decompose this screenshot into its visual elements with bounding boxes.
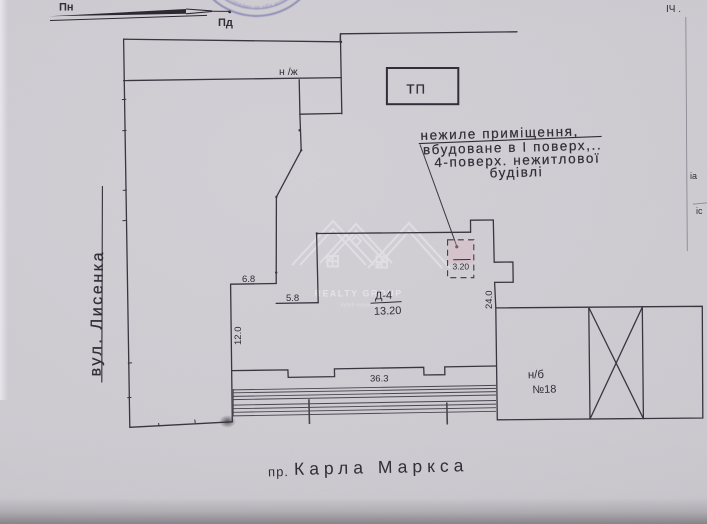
svg-text:н /ж: н /ж bbox=[279, 66, 298, 78]
svg-text:будівлі: будівлі bbox=[489, 164, 543, 180]
svg-text:24.0: 24.0 bbox=[484, 291, 495, 310]
svg-text:5.8: 5.8 bbox=[286, 293, 299, 304]
svg-text:6.8: 6.8 bbox=[242, 274, 255, 285]
svg-text:н/б: н/б bbox=[528, 369, 545, 382]
svg-text:36.3: 36.3 bbox=[370, 374, 389, 385]
svg-text:12.0: 12.0 bbox=[233, 327, 244, 346]
svg-text:ІЧ .: ІЧ . bbox=[666, 4, 681, 15]
svg-text:Д-4: Д-4 bbox=[375, 290, 393, 303]
svg-text:іс: іс bbox=[696, 206, 703, 216]
svg-text:Карла Маркса: Карла Маркса bbox=[294, 455, 469, 479]
svg-text:13.20: 13.20 bbox=[374, 305, 402, 318]
svg-text:ТП: ТП bbox=[407, 82, 427, 97]
svg-text:3.20: 3.20 bbox=[453, 261, 470, 271]
svg-text:Пн: Пн bbox=[59, 2, 74, 14]
svg-text:Пд: Пд bbox=[218, 17, 233, 29]
svg-text:пр.: пр. bbox=[268, 464, 289, 479]
svg-text:вул. Лисенка: вул. Лисенка bbox=[88, 250, 108, 377]
svg-text:іа: іа bbox=[690, 171, 697, 181]
svg-text:№18: №18 bbox=[532, 383, 556, 396]
